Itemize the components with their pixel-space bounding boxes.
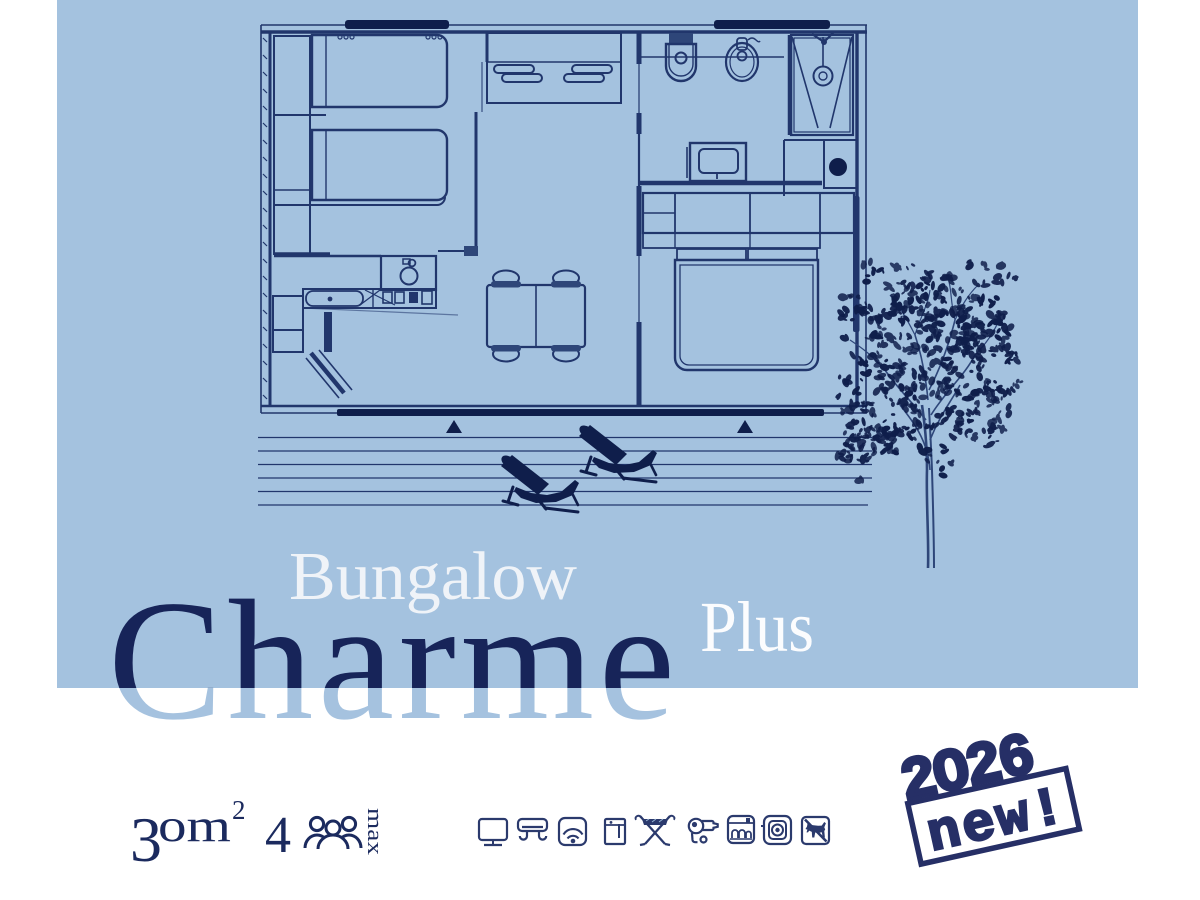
svg-text:max: max bbox=[363, 808, 388, 855]
svg-text:2: 2 bbox=[232, 795, 246, 825]
svg-text:Plus: Plus bbox=[700, 587, 814, 667]
svg-text:4: 4 bbox=[265, 807, 291, 864]
svg-text:om: om bbox=[158, 800, 231, 852]
